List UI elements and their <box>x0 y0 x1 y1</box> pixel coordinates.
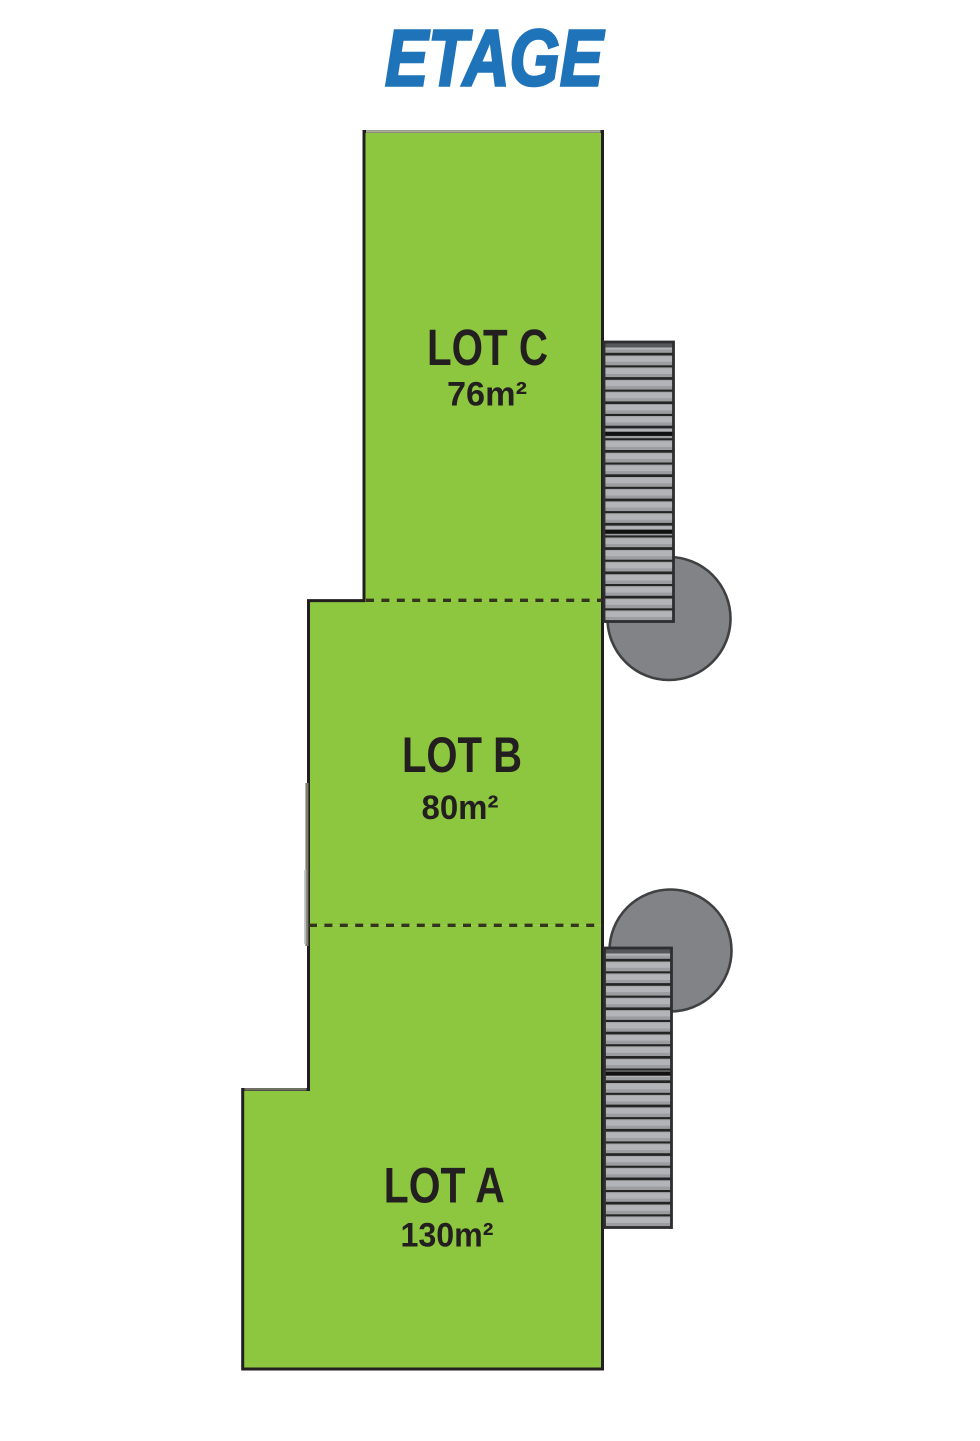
svg-text:76m²: 76m² <box>447 376 527 414</box>
svg-text:LOT A: LOT A <box>384 1158 505 1214</box>
svg-text:LOT B: LOT B <box>402 727 522 783</box>
svg-text:ETAGE: ETAGE <box>385 14 605 103</box>
svg-text:LOT C: LOT C <box>427 319 548 376</box>
svg-text:130m²: 130m² <box>401 1217 494 1255</box>
svg-text:80m²: 80m² <box>422 789 499 827</box>
